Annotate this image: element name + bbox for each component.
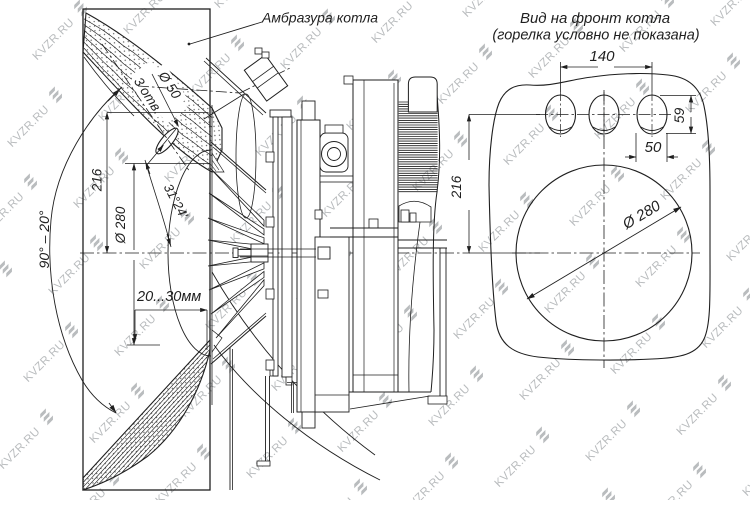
svg-text:Ø 280: Ø 280 xyxy=(619,197,664,233)
svg-text:KVZR.RU: KVZR.RU xyxy=(0,278,2,324)
svg-text:140: 140 xyxy=(589,48,615,65)
svg-text:KVZR.RU: KVZR.RU xyxy=(502,122,548,168)
svg-text:20...30мм: 20...30мм xyxy=(136,289,201,305)
svg-text:KVZR.RU: KVZR.RU xyxy=(634,244,680,290)
svg-text:KVZR.RU: KVZR.RU xyxy=(336,409,382,455)
svg-text:KVZR.RU: KVZR.RU xyxy=(311,496,357,500)
svg-text:KVZR.RU: KVZR.RU xyxy=(22,339,68,385)
svg-text:Ø 280: Ø 280 xyxy=(113,206,128,244)
svg-text:KVZR.RU: KVZR.RU xyxy=(31,17,77,63)
svg-text:KVZR.RU: KVZR.RU xyxy=(138,226,184,272)
svg-text:KVZR.RU: KVZR.RU xyxy=(122,0,168,37)
svg-text:216: 216 xyxy=(449,175,464,199)
svg-text:KVZR.RU: KVZR.RU xyxy=(427,383,473,429)
svg-text:(горелка условно не показана): (горелка условно не показана) xyxy=(492,28,699,44)
svg-text:KVZR.RU: KVZR.RU xyxy=(609,331,655,377)
svg-text:KVZR.RU: KVZR.RU xyxy=(402,470,448,500)
svg-text:KVZR.RU: KVZR.RU xyxy=(0,191,27,237)
svg-text:KVZR.RU: KVZR.RU xyxy=(154,461,200,500)
svg-text:KVZR.RU: KVZR.RU xyxy=(461,0,507,20)
svg-text:KVZR.RU: KVZR.RU xyxy=(568,183,614,229)
svg-text:KVZR.RU: KVZR.RU xyxy=(436,61,482,107)
svg-text:KVZR.RU: KVZR.RU xyxy=(279,26,325,72)
svg-text:KVZR.RU: KVZR.RU xyxy=(659,157,705,203)
svg-text:KVZR.RU: KVZR.RU xyxy=(700,305,746,351)
svg-text:216: 216 xyxy=(90,168,105,192)
svg-text:KVZR.RU: KVZR.RU xyxy=(709,0,750,29)
svg-text:KVZR.RU: KVZR.RU xyxy=(675,392,721,438)
svg-text:KVZR.RU: KVZR.RU xyxy=(6,104,52,150)
svg-text:Амбразура котла: Амбразура котла xyxy=(261,10,378,26)
svg-text:KVZR.RU: KVZR.RU xyxy=(650,479,696,500)
svg-text:KVZR.RU: KVZR.RU xyxy=(452,296,498,342)
svg-text:KVZR.RU: KVZR.RU xyxy=(684,70,730,116)
svg-text:KVZR.RU: KVZR.RU xyxy=(47,252,93,298)
svg-text:KVZR.RU: KVZR.RU xyxy=(518,357,564,403)
svg-text:Вид на фронт котла: Вид на фронт котла xyxy=(520,10,670,27)
svg-text:KVZR.RU: KVZR.RU xyxy=(584,418,630,464)
svg-text:KVZR.RU: KVZR.RU xyxy=(113,313,159,359)
svg-text:KVZR.RU: KVZR.RU xyxy=(725,218,750,264)
svg-text:KVZR.RU: KVZR.RU xyxy=(0,426,43,472)
svg-text:59: 59 xyxy=(671,108,687,124)
svg-text:31°24': 31°24' xyxy=(161,181,192,221)
svg-text:90° – 20°: 90° – 20° xyxy=(36,210,52,268)
svg-text:KVZR.RU: KVZR.RU xyxy=(543,270,589,316)
svg-text:50: 50 xyxy=(645,139,662,156)
svg-text:KVZR.RU: KVZR.RU xyxy=(493,444,539,490)
svg-text:KVZR.RU: KVZR.RU xyxy=(213,0,259,11)
svg-text:KVZR.RU: KVZR.RU xyxy=(741,453,750,499)
svg-text:KVZR.RU: KVZR.RU xyxy=(245,435,291,481)
